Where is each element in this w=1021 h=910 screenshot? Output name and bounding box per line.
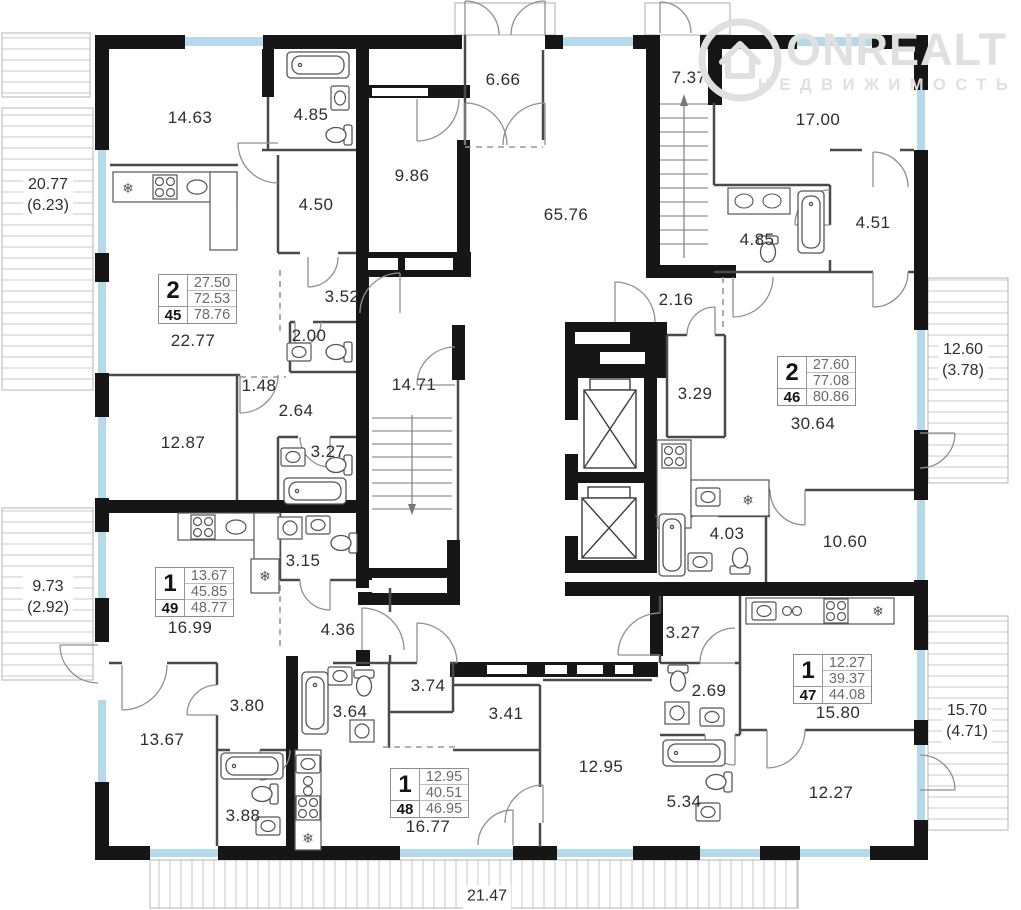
- room-label: 5.34: [667, 792, 702, 812]
- room-label: 3.64: [333, 702, 368, 722]
- apartment-type: 1: [156, 568, 185, 600]
- apartment-number: 45: [159, 307, 188, 323]
- room-label: 4.36: [321, 620, 356, 640]
- apartment-card-48: 1 12.95 40.51 48 46.95: [390, 768, 469, 818]
- apartment-area-1: 13.67: [185, 568, 233, 584]
- apartment-card-49: 1 13.67 45.85 49 48.77: [155, 567, 234, 617]
- apartment-area-total: 80.86: [807, 389, 855, 405]
- room-label: 3.27: [311, 442, 346, 462]
- room-label: 65.76: [544, 205, 589, 225]
- room-label: 3.27: [666, 623, 701, 643]
- room-label: 3.80: [230, 696, 265, 716]
- room-label: 7.37: [672, 68, 707, 88]
- apartment-type: 2: [159, 275, 188, 307]
- apartment-area-1: 12.95: [420, 769, 468, 785]
- apartment-number: 49: [156, 600, 185, 616]
- apartment-card-46: 2 27.60 77.08 46 80.86: [777, 356, 856, 406]
- room-label: 2.69: [692, 681, 727, 701]
- apartment-area-total: 78.76: [188, 307, 236, 323]
- room-label: 3.74: [411, 676, 446, 696]
- room-label: 2.64: [279, 401, 314, 421]
- room-label: 12.27: [809, 783, 854, 803]
- room-label: 3.52: [325, 287, 360, 307]
- room-label: 3.41: [489, 704, 524, 724]
- room-label: 12.87: [161, 433, 206, 453]
- apartment-area-2: 45.85: [185, 584, 233, 600]
- room-label: 3.88: [226, 806, 261, 826]
- apartment-area-2: 40.51: [420, 785, 468, 801]
- fridge-icon: ❄: [742, 492, 754, 508]
- apartment-number: 48: [391, 801, 420, 817]
- floor-plan-drawing: ❄ ❄ ❄ ❄ ❄: [0, 0, 1021, 910]
- apartment-area-1: 27.50: [188, 275, 236, 291]
- apartment-area-2: 39.37: [823, 671, 871, 687]
- apartment-number: 46: [778, 389, 807, 405]
- apartment-area-1: 27.60: [807, 357, 855, 373]
- apartment-card-47: 1 12.27 39.37 47 44.08: [793, 654, 872, 704]
- room-label: 4.03: [710, 524, 745, 544]
- room-label: 22.77: [171, 331, 216, 351]
- apartment-area-total: 44.08: [823, 687, 871, 703]
- room-label: 10.60: [823, 532, 868, 552]
- elevator-shafts: [582, 379, 636, 558]
- room-label: 4.51: [856, 213, 891, 233]
- room-label: 16.77: [406, 817, 451, 837]
- room-label: 1.48: [242, 376, 277, 396]
- room-label: 17.00: [796, 110, 841, 130]
- room-label: 9.86: [395, 166, 430, 186]
- room-label: 4.50: [299, 195, 334, 215]
- room-label: 12.95: [579, 757, 624, 777]
- room-label: 14.71: [392, 375, 437, 395]
- room-label: 6.66: [486, 70, 521, 90]
- room-label: 4.85: [294, 105, 329, 125]
- balcony-label: 15.70(4.71): [942, 700, 992, 744]
- room-label: 15.80: [816, 703, 861, 723]
- room-label: 3.29: [678, 384, 713, 404]
- apartment-type: 1: [794, 655, 823, 687]
- apartment-area-1: 12.27: [823, 655, 871, 671]
- balcony-label: 9.73(2.92): [23, 576, 73, 620]
- room-label: 2.16: [659, 290, 694, 310]
- room-label: 30.64: [791, 414, 836, 434]
- apartment-number: 47: [794, 687, 823, 703]
- balcony-label: 20.77(6.23): [23, 174, 73, 218]
- fridge-icon: ❄: [872, 603, 884, 619]
- balcony-label: 12.60(3.78): [938, 339, 988, 383]
- room-label: 4.85: [740, 230, 775, 250]
- apartment-area-2: 77.08: [807, 373, 855, 389]
- apartment-area-total: 46.95: [420, 801, 468, 817]
- apartment-card-45: 2 27.50 72.53 45 78.76: [158, 274, 237, 324]
- fridge-icon: ❄: [259, 568, 271, 584]
- room-label: 13.67: [140, 730, 185, 750]
- room-label: 14.63: [168, 108, 213, 128]
- apartment-type: 2: [778, 357, 807, 389]
- terrace-label: 21.47: [463, 886, 511, 909]
- apartment-area-total: 48.77: [185, 600, 233, 616]
- apartment-type: 1: [391, 769, 420, 801]
- plan-background: [0, 0, 1021, 910]
- fridge-icon: ❄: [302, 830, 314, 846]
- fridge-icon: ❄: [122, 180, 134, 196]
- room-label: 3.15: [286, 551, 321, 571]
- room-label: 16.99: [168, 618, 213, 638]
- room-label: 2.00: [292, 326, 327, 346]
- floor-plan-page: ❄ ❄ ❄ ❄ ❄ 14.63 4.85 4.50 9.86 6.66 65.7…: [0, 0, 1021, 910]
- apartment-area-2: 72.53: [188, 291, 236, 307]
